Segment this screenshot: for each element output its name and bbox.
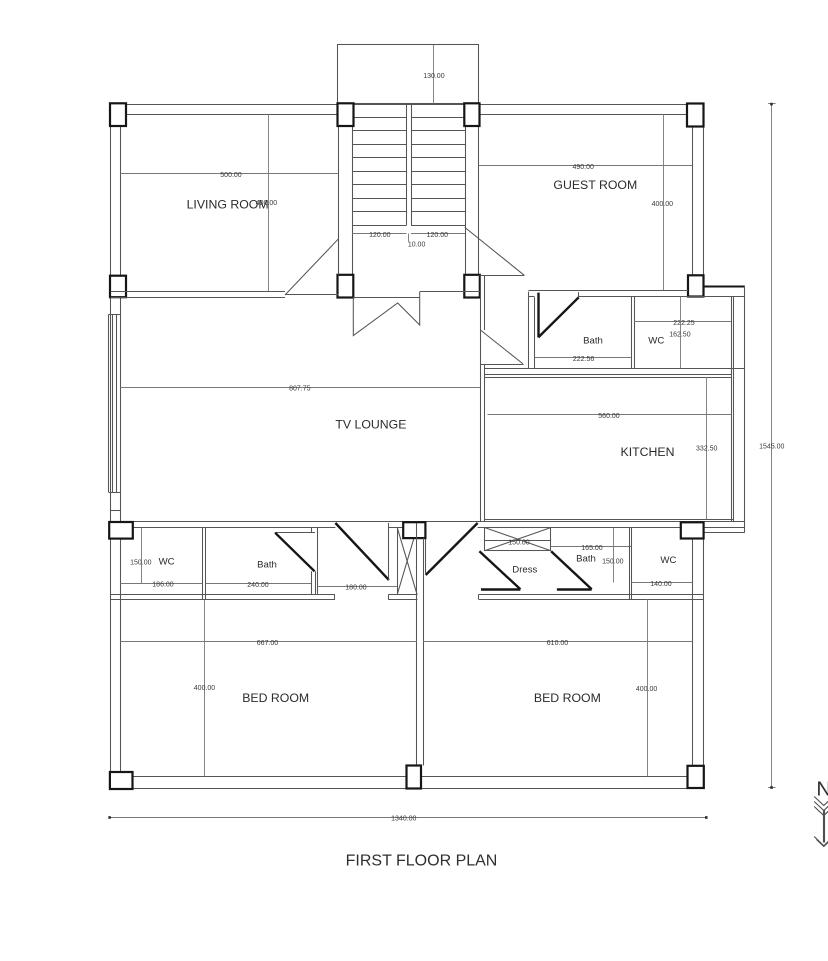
svg-text:1340.00: 1340.00 (391, 815, 416, 822)
svg-text:500.00: 500.00 (220, 172, 242, 179)
svg-text:10.00: 10.00 (408, 241, 426, 248)
svg-text:140.00: 140.00 (650, 581, 672, 588)
svg-text:490.00: 490.00 (572, 164, 594, 171)
svg-text:400.00: 400.00 (256, 200, 278, 207)
svg-text:180.00: 180.00 (345, 585, 367, 592)
svg-text:667.00: 667.00 (257, 640, 279, 647)
svg-text:150.00: 150.00 (130, 560, 152, 567)
svg-text:1545.00: 1545.00 (759, 443, 784, 450)
svg-text:TV LOUNGE: TV LOUNGE (335, 418, 406, 432)
svg-text:400.00: 400.00 (652, 201, 674, 208)
svg-text:165.00: 165.00 (581, 545, 603, 552)
svg-text:WC: WC (159, 557, 175, 568)
svg-text:BED ROOM: BED ROOM (534, 691, 601, 705)
svg-text:Dress: Dress (512, 565, 537, 576)
svg-text:130.00: 130.00 (423, 73, 445, 80)
svg-text:162.50: 162.50 (669, 331, 691, 338)
svg-text:332.50: 332.50 (696, 446, 718, 453)
svg-text:Bath: Bath (257, 559, 277, 570)
svg-text:N: N (816, 778, 828, 801)
svg-text:Bath: Bath (583, 336, 603, 347)
svg-text:WC: WC (648, 336, 664, 347)
svg-text:FIRST FLOOR PLAN: FIRST FLOOR PLAN (346, 853, 498, 870)
svg-text:222.25: 222.25 (673, 320, 695, 327)
svg-text:222.56: 222.56 (573, 356, 595, 363)
svg-text:400.00: 400.00 (636, 686, 658, 693)
svg-text:560.00: 560.00 (598, 413, 620, 420)
svg-text:120.00: 120.00 (369, 232, 391, 239)
svg-text:150.00: 150.00 (508, 540, 530, 547)
svg-text:807.75: 807.75 (289, 386, 311, 393)
svg-text:400.00: 400.00 (194, 685, 216, 692)
svg-text:WC: WC (660, 555, 676, 566)
svg-text:120.00: 120.00 (427, 232, 449, 239)
svg-text:240.00: 240.00 (247, 582, 269, 589)
svg-text:150.00: 150.00 (602, 559, 624, 566)
svg-text:Bath: Bath (576, 554, 596, 565)
svg-text:186.00: 186.00 (152, 582, 174, 589)
svg-text:GUEST ROOM: GUEST ROOM (553, 178, 637, 192)
svg-text:KITCHEN: KITCHEN (621, 445, 675, 459)
svg-text:610.00: 610.00 (547, 640, 569, 647)
svg-text:BED ROOM: BED ROOM (242, 691, 309, 705)
